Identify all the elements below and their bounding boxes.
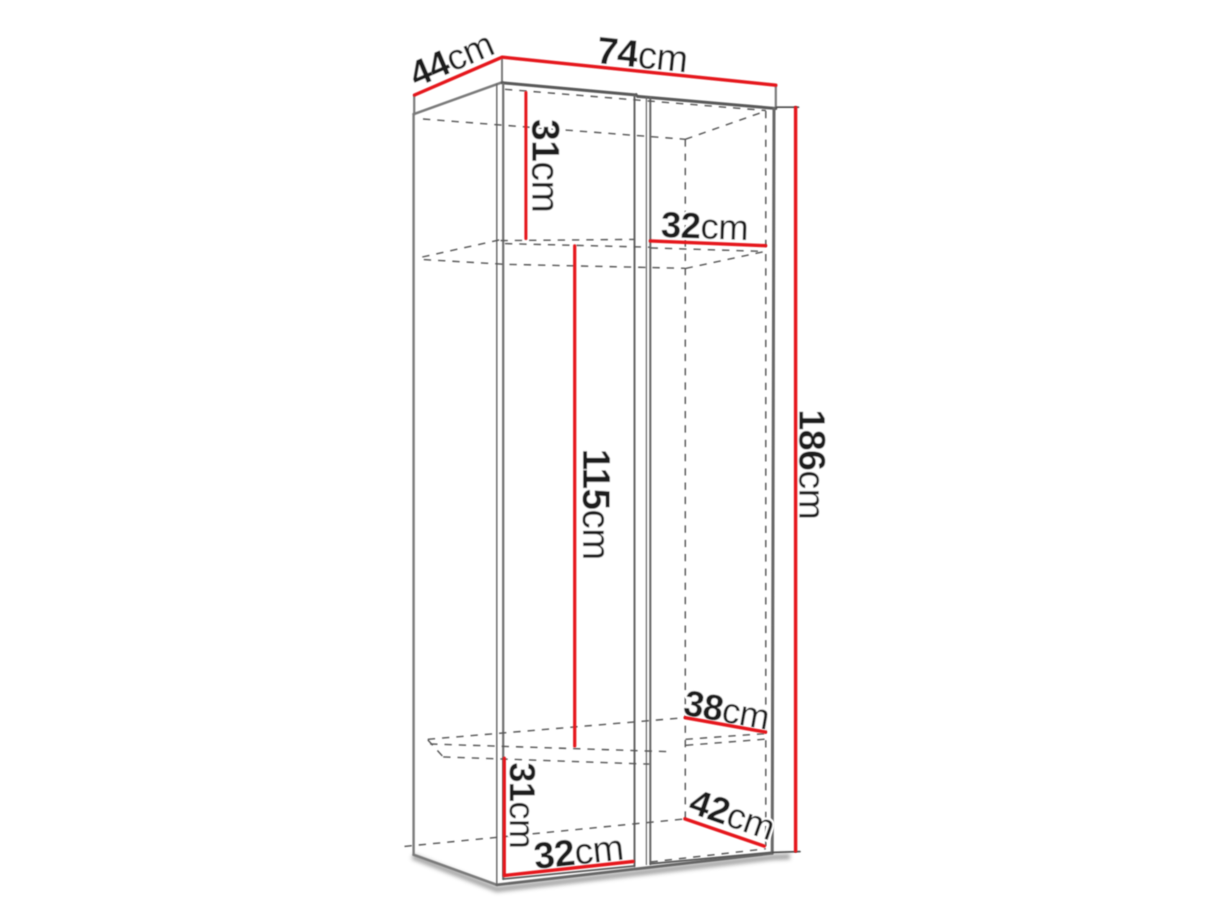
- svg-text:38cm: 38cm: [681, 682, 773, 738]
- svg-text:186cm: 186cm: [791, 409, 833, 519]
- svg-text:115cm: 115cm: [574, 449, 617, 560]
- svg-text:31cm: 31cm: [523, 119, 566, 212]
- svg-text:42cm: 42cm: [684, 780, 780, 847]
- svg-text:44cm: 44cm: [403, 23, 499, 95]
